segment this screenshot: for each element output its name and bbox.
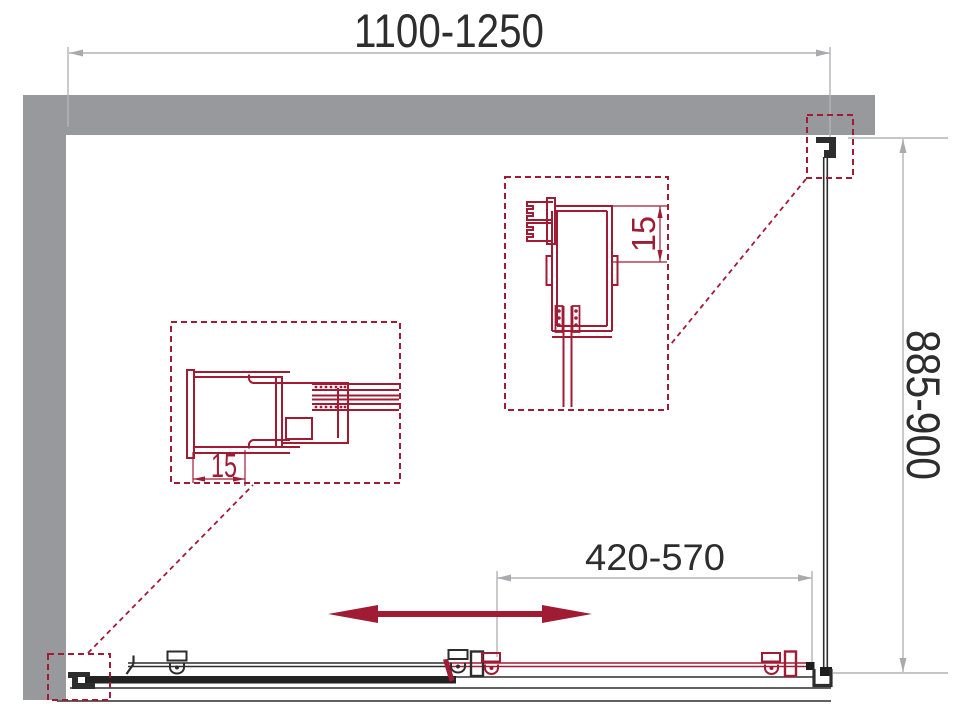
arrowhead-bottom (900, 658, 907, 672)
arrowhead-top (900, 139, 907, 153)
wall-left (23, 95, 66, 700)
detail-right-seal-dots (557, 309, 578, 327)
detail-left-profile (187, 370, 399, 458)
walls (23, 95, 875, 700)
slide-direction-arrow (328, 605, 592, 623)
dimension-side-depth: 885-900 (833, 138, 950, 673)
arrowhead-left (69, 50, 83, 57)
dimension-door-opening: 420-570 (497, 537, 812, 662)
detail-left-frame (171, 322, 400, 483)
detail-right-dimension: 15 (613, 206, 667, 262)
leader-left (88, 485, 253, 653)
side-depth-label: 885-900 (897, 330, 950, 480)
drawing-canvas: 1100-1250 885-900 420-570 (0, 0, 970, 719)
bottom-track-assembly (57, 650, 831, 701)
arrowhead-right (816, 50, 830, 57)
detail-view-right: 15 (505, 177, 668, 410)
detail-left-label: 15 (211, 447, 237, 484)
wall-mount-bracket-top (816, 137, 836, 158)
fixed-panel-bar (85, 676, 456, 684)
detail-view-left: 15 (171, 322, 400, 486)
wall-top (23, 95, 875, 135)
detail-right-profile (527, 198, 618, 407)
door-opening-label: 420-570 (585, 537, 725, 578)
roller-black-2 (449, 650, 468, 673)
left-glass-panel (127, 656, 447, 675)
overall-width-label: 1100-1250 (354, 4, 544, 57)
arrowhead-right (798, 575, 812, 582)
side-panel (814, 137, 836, 686)
technical-drawing: 1100-1250 885-900 420-570 (0, 0, 970, 719)
door-end-stop (806, 662, 815, 670)
leader-right (671, 179, 806, 344)
detail-right-label: 15 (625, 216, 662, 252)
arrowhead-left (497, 575, 511, 582)
